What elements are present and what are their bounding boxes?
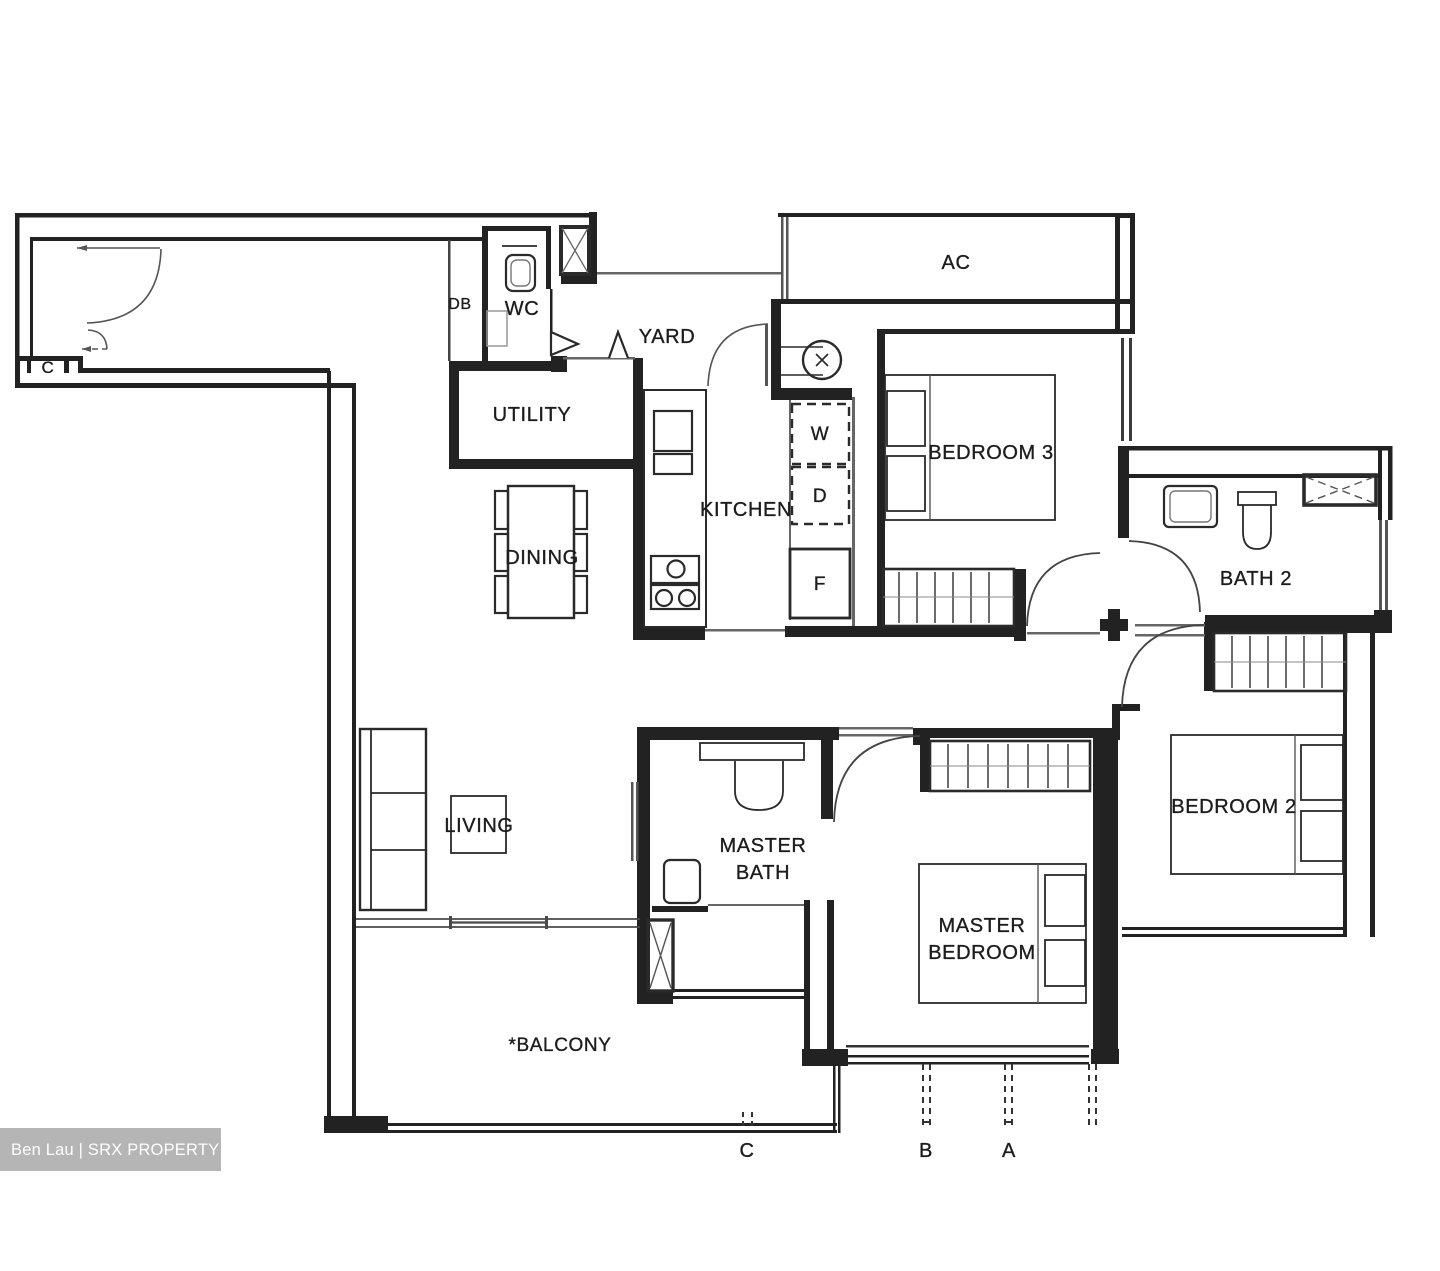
svg-text:DB: DB — [448, 296, 471, 313]
svg-text:UTILITY: UTILITY — [493, 404, 572, 426]
svg-text:BATH: BATH — [736, 862, 790, 884]
svg-text:MASTER: MASTER — [720, 835, 807, 857]
svg-text:D: D — [813, 486, 827, 507]
svg-text:BEDROOM 2: BEDROOM 2 — [1171, 796, 1296, 818]
svg-text:*BALCONY: *BALCONY — [508, 1035, 611, 1056]
svg-text:C: C — [739, 1140, 754, 1162]
svg-text:DINING: DINING — [505, 547, 579, 569]
svg-text:YARD: YARD — [639, 326, 695, 348]
svg-text:KITCHEN: KITCHEN — [700, 499, 792, 521]
svg-text:Ben Lau | SRX PROPERTY: Ben Lau | SRX PROPERTY — [11, 1141, 219, 1159]
svg-text:BEDROOM: BEDROOM — [928, 942, 1036, 964]
svg-text:WC: WC — [505, 298, 540, 320]
svg-text:BEDROOM 3: BEDROOM 3 — [928, 442, 1053, 464]
svg-text:A: A — [1002, 1140, 1016, 1162]
svg-text:F: F — [814, 574, 826, 595]
svg-text:MASTER: MASTER — [939, 915, 1026, 937]
svg-text:B: B — [919, 1140, 933, 1162]
svg-text:W: W — [811, 424, 830, 445]
svg-text:LIVING: LIVING — [444, 815, 513, 837]
svg-text:C: C — [42, 358, 55, 377]
svg-text:AC: AC — [942, 252, 971, 274]
svg-text:BATH 2: BATH 2 — [1220, 568, 1292, 590]
